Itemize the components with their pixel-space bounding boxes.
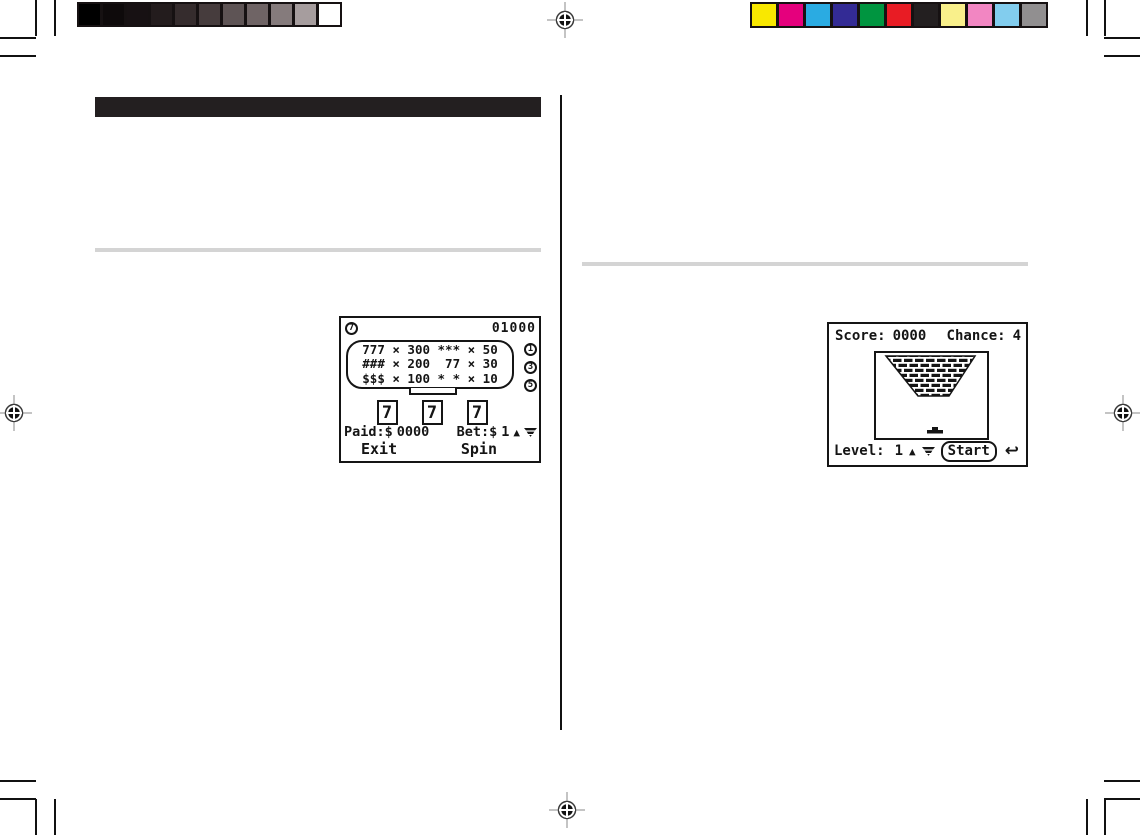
- score-value: 0000: [893, 328, 927, 344]
- paytable-row: $$$ × 100 * * × 10: [362, 372, 497, 387]
- color-calibration-bar: [750, 2, 1048, 28]
- color-swatch: [752, 4, 776, 26]
- bet-value: 1: [501, 424, 509, 440]
- color-swatch: [968, 4, 992, 26]
- level-value: 1: [895, 443, 903, 459]
- slot-game-screen: 7 01000 777 × 300 *** × 50 ### × 200 77 …: [339, 316, 541, 463]
- bricks-and-paddle: [876, 353, 987, 438]
- crop-mark: [0, 37, 36, 39]
- crop-mark: [0, 798, 36, 800]
- color-swatch: [941, 4, 965, 26]
- score-row: Score: 0000 Chance: 4: [835, 328, 1021, 344]
- level-up-icon[interactable]: ▲: [909, 446, 916, 457]
- color-swatch: [779, 4, 803, 26]
- registration-mark-icon: [0, 395, 32, 431]
- brick-game-screen: Score: 0000 Chance: 4: [827, 322, 1028, 467]
- paytable-row: ### × 200 77 × 30: [362, 357, 497, 372]
- crop-mark: [1104, 55, 1140, 57]
- crop-mark: [1104, 799, 1106, 835]
- playfield-box: [874, 351, 989, 440]
- crop-mark: [1086, 0, 1088, 36]
- paytable-tab: [409, 388, 457, 395]
- color-swatch: [833, 4, 857, 26]
- gray-swatch: [295, 4, 316, 25]
- registration-mark-icon: [547, 2, 583, 38]
- crop-mark: [1104, 37, 1140, 39]
- spin-button[interactable]: Spin: [461, 440, 497, 458]
- paid-value: 0000: [397, 424, 430, 440]
- reel-window: 7: [377, 400, 398, 425]
- start-button[interactable]: Start: [941, 441, 997, 462]
- gray-swatch: [199, 4, 220, 25]
- paytable-badges: 1 3 5: [524, 343, 537, 392]
- paid-label: Paid:$: [344, 424, 393, 440]
- gray-swatch: [319, 4, 340, 25]
- gray-swatch: [271, 4, 292, 25]
- color-swatch: [806, 4, 830, 26]
- crop-mark: [1104, 780, 1140, 782]
- paytable-row: 777 × 300 *** × 50: [362, 343, 497, 358]
- reel-window: 7: [422, 400, 443, 425]
- crop-mark: [35, 0, 37, 36]
- crop-mark: [1104, 0, 1106, 36]
- reel-window: 7: [467, 400, 488, 425]
- column-divider: [560, 95, 562, 730]
- crop-mark: [0, 780, 36, 782]
- paytable-box: 777 × 300 *** × 50 ### × 200 77 × 30 $$$…: [346, 340, 514, 389]
- grayscale-calibration-bar: [77, 2, 342, 27]
- badge-5-icon: 5: [524, 379, 537, 392]
- gray-swatch: [127, 4, 148, 25]
- gray-swatch: [247, 4, 268, 25]
- seven-badge-icon: 7: [345, 322, 358, 335]
- bet-readout: Bet:$ 1 ▲: [457, 424, 537, 440]
- brick-wall: [886, 356, 975, 396]
- level-down-icon[interactable]: [922, 447, 935, 456]
- gray-swatch: [103, 4, 124, 25]
- section-heading-bar: [95, 97, 541, 117]
- score-readout: Score: 0000: [835, 328, 926, 344]
- crop-mark: [35, 799, 37, 835]
- crop-mark: [1086, 799, 1088, 835]
- color-swatch: [860, 4, 884, 26]
- chance-label: Chance:: [947, 328, 1006, 344]
- score-label: Score:: [835, 328, 886, 344]
- return-arrow-icon[interactable]: ↩: [1005, 443, 1019, 460]
- paid-readout: Paid:$0000: [344, 424, 429, 440]
- credit-counter: 01000: [492, 321, 536, 336]
- color-swatch: [1022, 4, 1046, 26]
- paddle: [927, 430, 943, 434]
- gray-swatch: [79, 4, 100, 25]
- color-swatch: [995, 4, 1019, 26]
- registration-mark-icon: [549, 792, 585, 828]
- badge-3-icon: 3: [524, 361, 537, 374]
- badge-1-icon: 1: [524, 343, 537, 356]
- color-swatch: [887, 4, 911, 26]
- gray-swatch: [175, 4, 196, 25]
- divider-rule: [95, 248, 541, 252]
- color-swatch: [914, 4, 938, 26]
- gray-swatch: [223, 4, 244, 25]
- gray-swatch: [151, 4, 172, 25]
- divider-rule: [582, 262, 1028, 266]
- scanned-manual-page: 7 01000 777 × 300 *** × 50 ### × 200 77 …: [0, 0, 1140, 835]
- crop-mark: [54, 0, 56, 36]
- crop-mark: [54, 799, 56, 835]
- chance-readout: Chance: 4: [947, 328, 1021, 344]
- exit-button[interactable]: Exit: [361, 440, 397, 458]
- slot-status-row: 7 01000: [345, 320, 536, 336]
- paddle: [932, 427, 938, 430]
- bet-up-icon[interactable]: ▲: [513, 427, 520, 438]
- registration-mark-icon: [1105, 395, 1140, 431]
- slot-reels: 7 7 7: [341, 400, 523, 425]
- bet-down-icon[interactable]: [524, 428, 537, 437]
- slot-softkeys: Exit Spin: [361, 439, 497, 459]
- bet-label: Bet:$: [457, 424, 498, 440]
- level-row: Level: 1 ▲ Start ↩: [834, 440, 1022, 462]
- crop-mark: [0, 55, 36, 57]
- level-label: Level:: [834, 443, 885, 459]
- crop-mark: [1104, 798, 1140, 800]
- chance-value: 4: [1013, 328, 1021, 344]
